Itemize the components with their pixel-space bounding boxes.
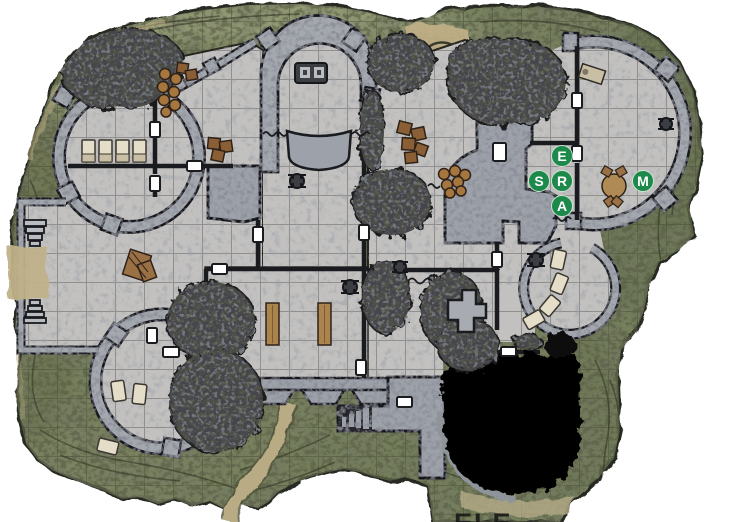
svg-text:M: M <box>637 173 649 189</box>
svg-text:A: A <box>557 198 567 214</box>
svg-text:E: E <box>557 148 566 164</box>
svg-text:R: R <box>557 173 567 189</box>
svg-text:S: S <box>534 173 543 189</box>
svg-text:ELE: ELE <box>454 508 513 522</box>
